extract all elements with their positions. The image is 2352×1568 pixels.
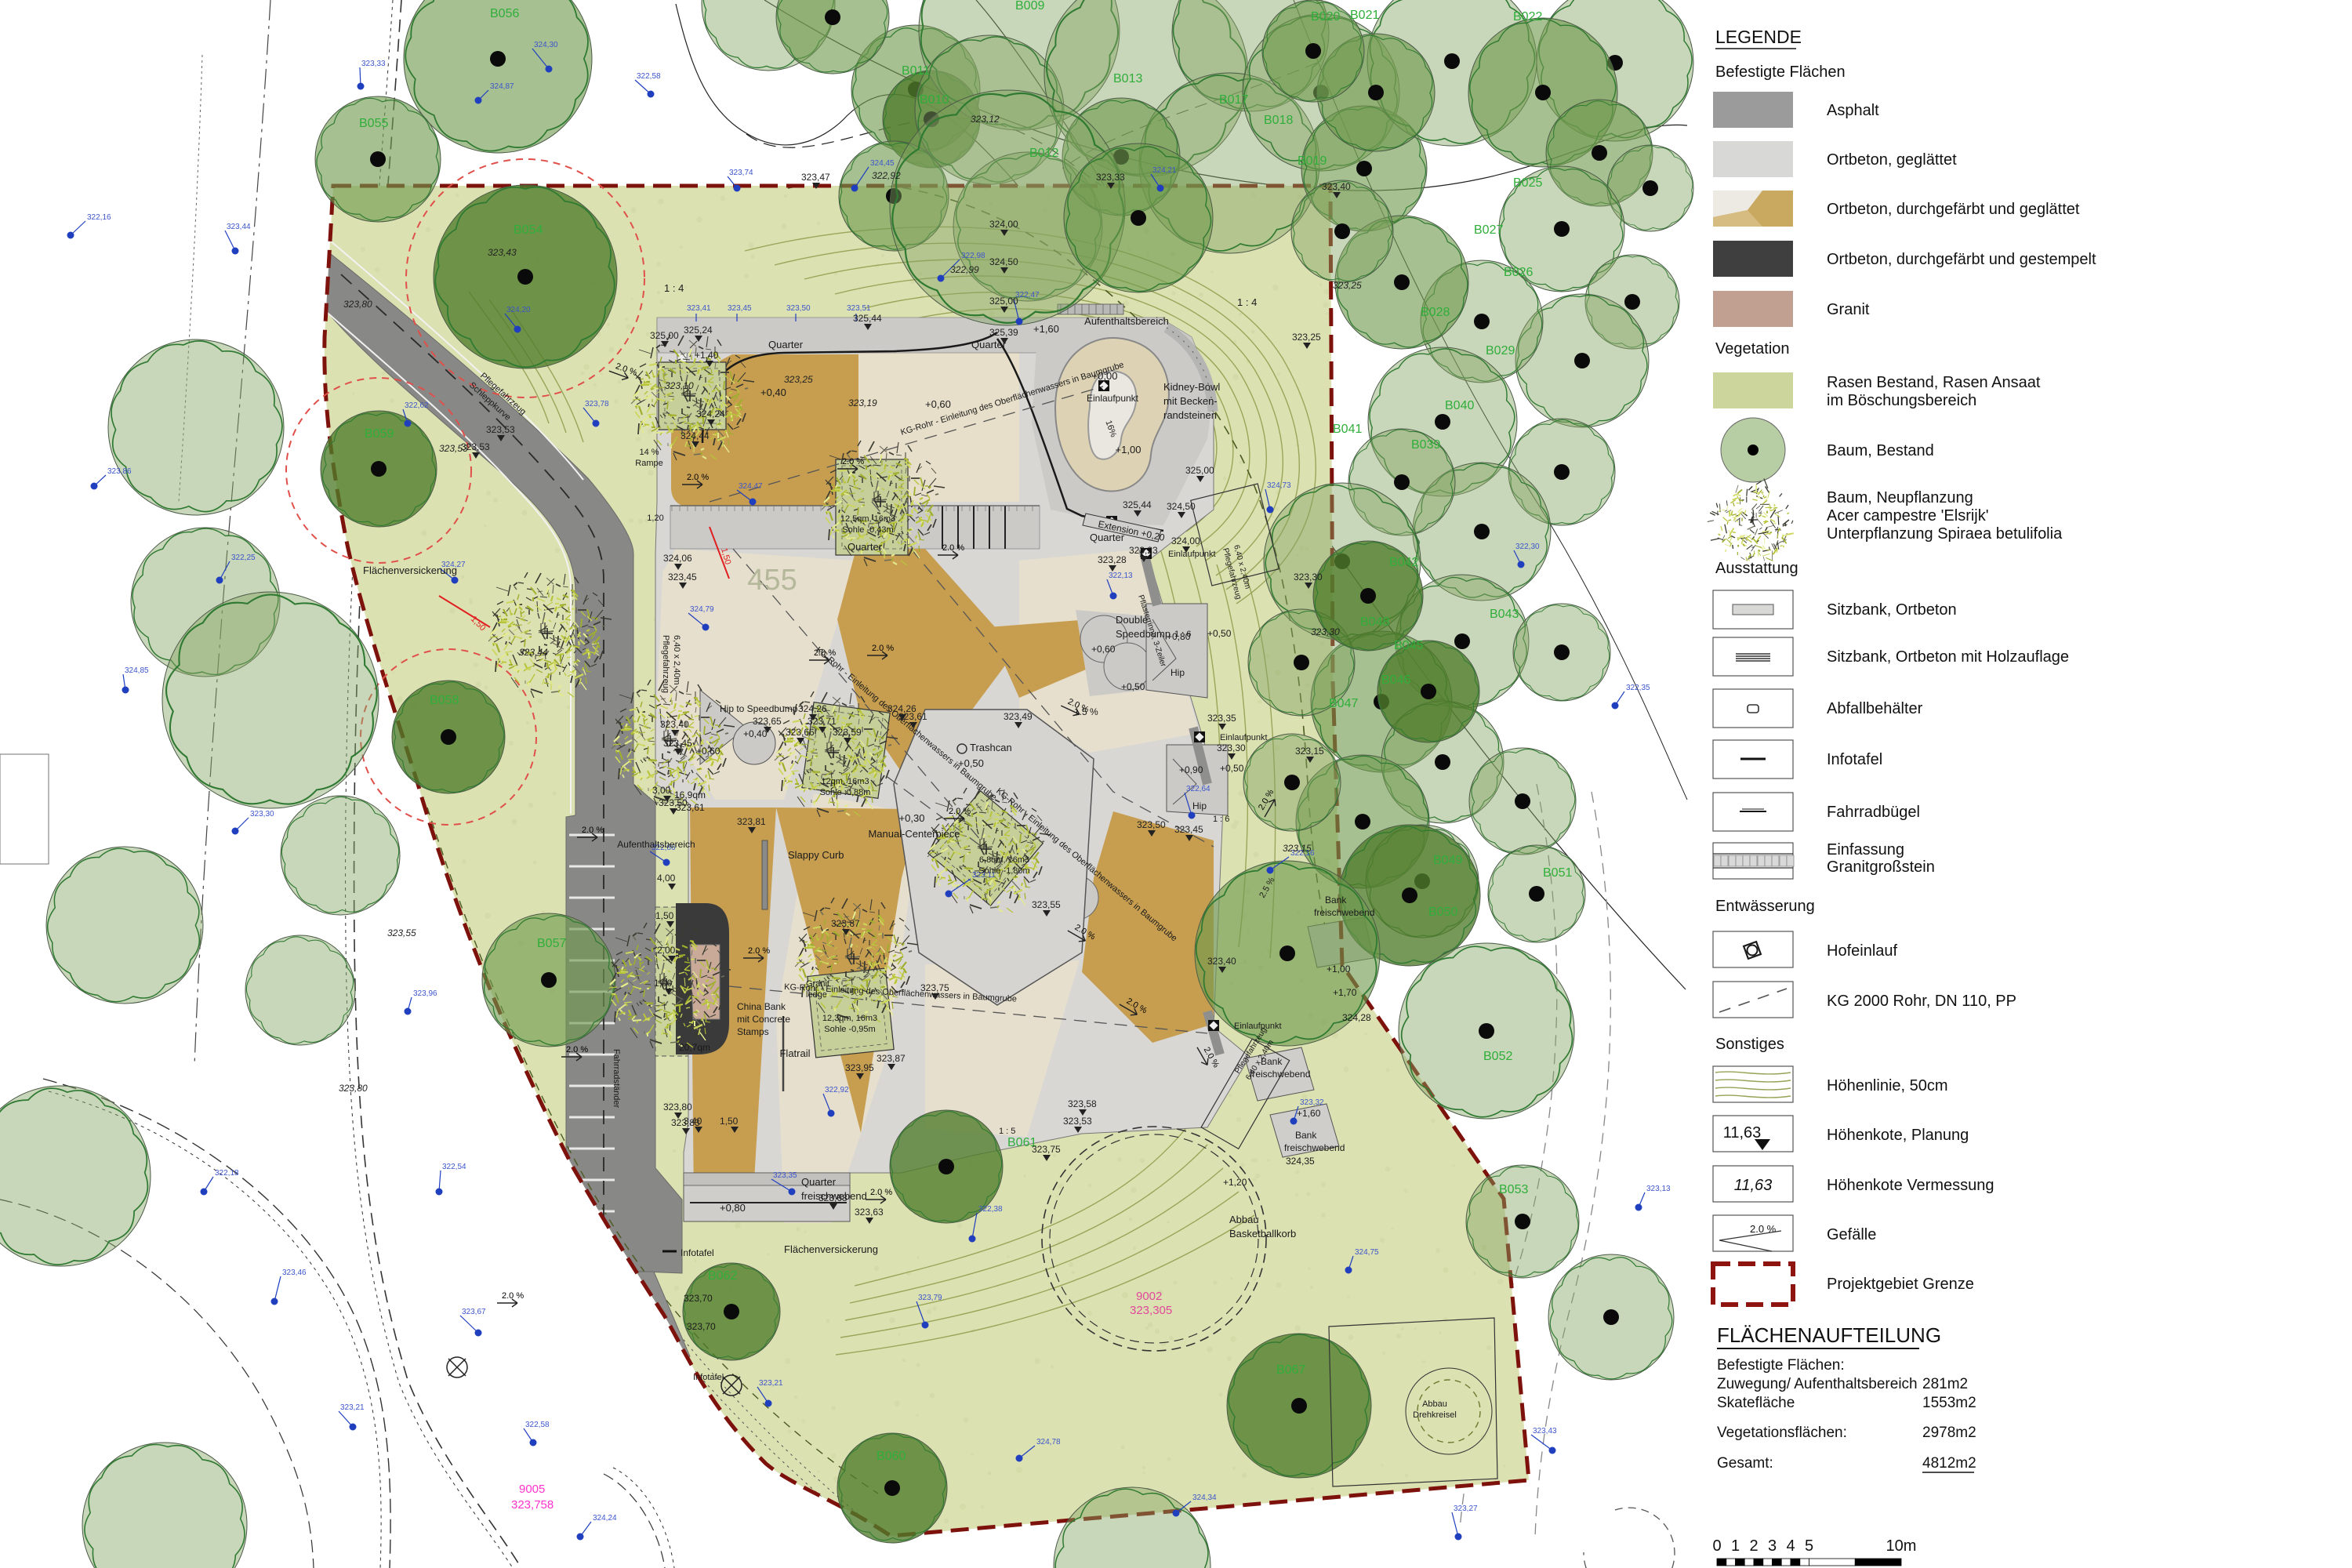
svg-text:11,63: 11,63	[1723, 1124, 1762, 1142]
svg-text:Gefälle: Gefälle	[1827, 1226, 1876, 1243]
svg-text:3: 3	[1768, 1537, 1777, 1555]
svg-text:Höhenkote, Planung: Höhenkote, Planung	[1827, 1127, 1969, 1144]
svg-text:1553m2: 1553m2	[1922, 1395, 1976, 1411]
svg-text:Gesamt:: Gesamt:	[1717, 1455, 1773, 1472]
svg-text:FLÄCHENAUFTEILUNG: FLÄCHENAUFTEILUNG	[1717, 1323, 1941, 1347]
svg-text:im Böschungsbereich: im Böschungsbereich	[1827, 392, 1976, 409]
svg-text:2: 2	[1749, 1537, 1758, 1555]
svg-text:Zuwegung/ Aufenthaltsbereich: Zuwegung/ Aufenthaltsbereich	[1717, 1376, 1918, 1392]
svg-text:0: 0	[1712, 1537, 1721, 1555]
svg-text:Vegetation: Vegetation	[1715, 340, 1790, 358]
svg-text:Abfallbehälter: Abfallbehälter	[1827, 700, 1923, 717]
svg-text:5: 5	[1805, 1537, 1813, 1555]
svg-text:4812m2: 4812m2	[1922, 1455, 1976, 1472]
svg-text:Skatefläche: Skatefläche	[1717, 1395, 1795, 1411]
svg-text:Granit: Granit	[1827, 301, 1870, 318]
svg-text:Höhenlinie, 50cm: Höhenlinie, 50cm	[1827, 1077, 1948, 1094]
svg-text:Acer campestre 'Elsrijk': Acer campestre 'Elsrijk'	[1827, 507, 1989, 524]
svg-text:Unterpflanzung Spiraea betulif: Unterpflanzung Spiraea betulifolia	[1827, 525, 2063, 543]
svg-text:Entwässerung: Entwässerung	[1715, 898, 1815, 915]
svg-text:Asphalt: Asphalt	[1827, 102, 1879, 119]
svg-text:1: 1	[1731, 1537, 1740, 1555]
svg-text:Höhenkote Vermessung: Höhenkote Vermessung	[1827, 1177, 1994, 1194]
svg-text:10m: 10m	[1886, 1537, 1917, 1555]
svg-text:KG 2000 Rohr, DN 110, PP: KG 2000 Rohr, DN 110, PP	[1827, 993, 2016, 1010]
svg-text:Ortbeton, geglättet: Ortbeton, geglättet	[1827, 151, 1957, 169]
svg-text:2978m2: 2978m2	[1922, 1425, 1976, 1441]
svg-text:11,63: 11,63	[1734, 1177, 1773, 1194]
svg-text:Einfassung: Einfassung	[1827, 841, 1904, 858]
svg-text:Infotafel: Infotafel	[1827, 751, 1882, 768]
svg-text:LEGENDE: LEGENDE	[1715, 27, 1802, 47]
svg-text:Baum, Bestand: Baum, Bestand	[1827, 442, 1934, 459]
svg-text:Baum, Neupflanzung: Baum, Neupflanzung	[1827, 489, 1973, 506]
svg-text:2.0 %: 2.0 %	[1750, 1223, 1777, 1235]
svg-text:Hofeinlauf: Hofeinlauf	[1827, 942, 1898, 960]
svg-text:Vegetationsflächen:: Vegetationsflächen:	[1717, 1425, 1847, 1441]
svg-text:Befestigte Flächen: Befestigte Flächen	[1715, 64, 1846, 81]
svg-text:Sitzbank, Ortbeton mit Holzauf: Sitzbank, Ortbeton mit Holzauflage	[1827, 648, 2069, 666]
svg-text:Sitzbank, Ortbeton: Sitzbank, Ortbeton	[1827, 601, 1957, 619]
svg-text:Projektgebiet Grenze: Projektgebiet Grenze	[1827, 1276, 1974, 1293]
svg-text:Rasen Bestand, Rasen Ansaat: Rasen Bestand, Rasen Ansaat	[1827, 374, 2041, 391]
svg-text:Granitgroßstein: Granitgroßstein	[1827, 858, 1935, 876]
svg-text:281m2: 281m2	[1922, 1376, 1968, 1392]
svg-text:4: 4	[1786, 1537, 1795, 1555]
svg-text:Ortbeton, durchgefärbt und ges: Ortbeton, durchgefärbt und gestempelt	[1827, 251, 2096, 268]
svg-text:Ausstattung: Ausstattung	[1715, 560, 1798, 577]
svg-text:Befestigte Flächen:: Befestigte Flächen:	[1717, 1357, 1845, 1374]
svg-text:Sonstiges: Sonstiges	[1715, 1036, 1784, 1053]
svg-text:Fahrradbügel: Fahrradbügel	[1827, 804, 1920, 821]
svg-text:Ortbeton, durchgefärbt und geg: Ortbeton, durchgefärbt und geglättet	[1827, 201, 2080, 218]
